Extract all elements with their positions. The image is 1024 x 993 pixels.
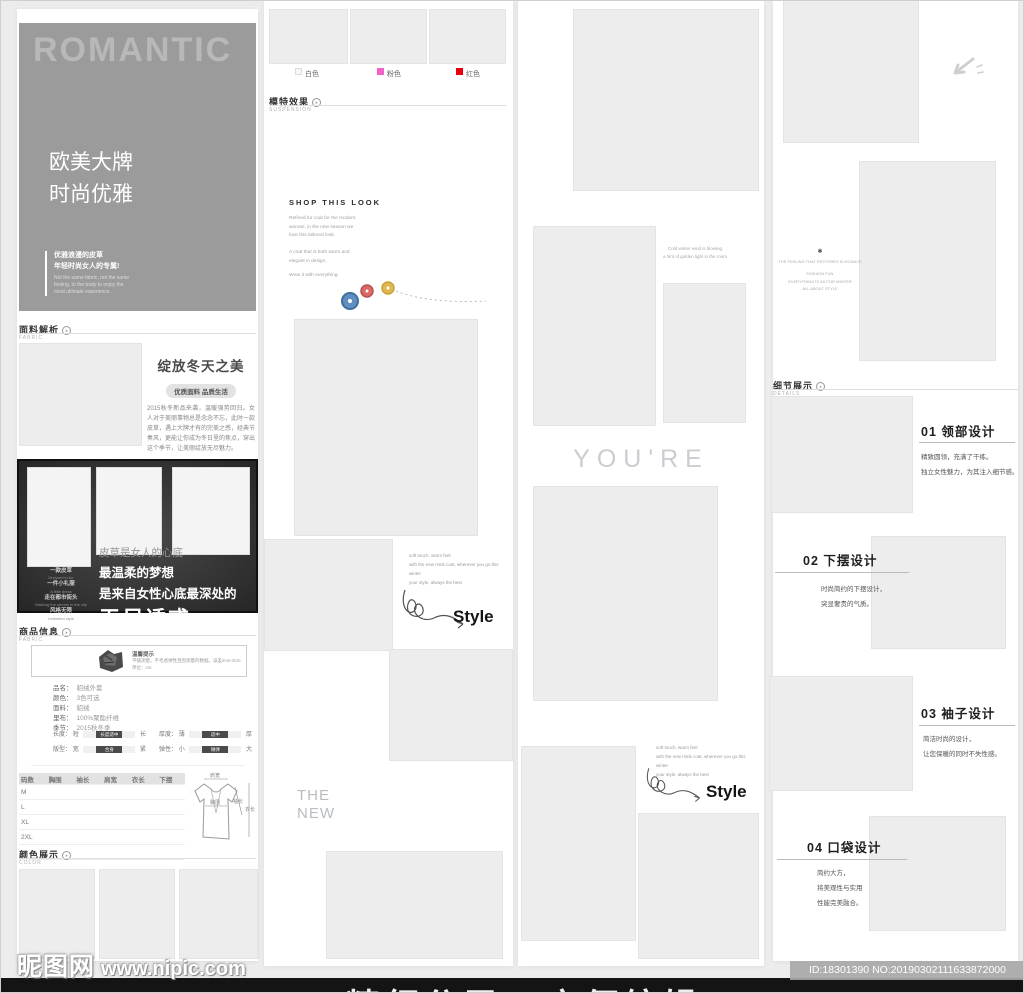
- size-col-header: 袖长: [74, 774, 102, 784]
- the-new-line: THE: [297, 787, 335, 805]
- swatch-label: 粉色: [387, 71, 401, 78]
- image-placeholder: [19, 869, 95, 959]
- handnote-line: with the new mink coat, wherever you go …: [409, 560, 509, 578]
- attr-row: 颜色：3色可选: [53, 692, 100, 702]
- diagram-label: 袖长: [233, 798, 243, 805]
- image-placeholder: [326, 851, 503, 959]
- slider-chip: 长度适中: [96, 731, 122, 738]
- table-row: 2XL: [19, 830, 185, 845]
- size-row-label: L: [19, 804, 48, 811]
- swatch-red[interactable]: 红色: [456, 68, 480, 79]
- banner-side-tags: 一款皮草 Dressed in fur 一件小礼服 A little dress…: [23, 567, 99, 621]
- squiggle-arrow-icon: [641, 763, 711, 805]
- diagram-label: 胸围: [210, 799, 220, 806]
- image-placeholder: [573, 9, 759, 191]
- detail-01-body: 精致圆领，充满了干练。 独立女性魅力，为其注入细节感。: [921, 451, 1021, 481]
- size-table-header: 码数 胸围 袖长 肩宽 衣长 下摆: [19, 773, 185, 785]
- image-placeholder: [350, 9, 427, 64]
- detail-body-line: 简约大方，: [817, 867, 912, 882]
- nipic-url: www.nipic.com: [101, 958, 246, 980]
- banner-main-text: 皮草是女人的心底 最温柔的梦想 是来自女性心底最深处的 无尽诱惑: [99, 545, 255, 633]
- jacket-diagram-icon: 肩宽 胸围 袖长 衣长: [189, 773, 255, 849]
- white-swatch-icon: [295, 68, 302, 75]
- divider: [775, 572, 909, 573]
- hero-title: ROMANTIC: [33, 31, 232, 70]
- image-placeholder: [533, 226, 656, 426]
- attr-row: 里布：100%聚酯纤维: [53, 712, 119, 722]
- nipic-logo: 昵图网: [17, 953, 95, 981]
- divider: [919, 442, 1015, 443]
- mini-line: FASHION FUN: [777, 270, 863, 278]
- slider-label: 版型：: [53, 747, 71, 753]
- hero-note-en1: Not the same fabric, not the same: [54, 275, 129, 282]
- slider-length: 长度： 短 长度适中 长: [53, 729, 146, 738]
- attr-row: 品名：貂绒外套: [53, 682, 103, 692]
- hero-subtitle-line2: 时尚优雅: [49, 179, 133, 211]
- image-placeholder: [859, 161, 996, 361]
- image-placeholder: [771, 396, 913, 513]
- photo-caption: Cold winter wind is blowing a hint of go…: [649, 245, 741, 261]
- style-label: Style: [706, 782, 747, 802]
- pink-swatch-icon: [377, 68, 384, 75]
- attr-value: 貂绒: [77, 705, 90, 712]
- hero-note-cn1: 优雅浪漫的皮草: [54, 251, 129, 262]
- detail-04-title: 04 口袋设计: [807, 837, 881, 856]
- divider: [269, 105, 506, 106]
- divider: [919, 725, 1015, 726]
- tip-line2: 单位：cm: [132, 665, 242, 672]
- measure-tip-box: 温馨提示 平铺测量，不考虑弹性且因测量的数据，误差2cm-3cm 单位：cm: [31, 645, 247, 677]
- table-row: M: [19, 785, 185, 800]
- swatch-white[interactable]: 白色: [295, 68, 319, 79]
- the-new-label: THE NEW: [297, 787, 335, 823]
- size-col-header: 下摆: [157, 774, 185, 784]
- image-placeholder: [429, 9, 506, 64]
- banner-side-cn: 风格无限: [23, 607, 99, 615]
- shop-paragraph: A coat that is both warm and elegant in …: [289, 249, 399, 266]
- slider-min: 短: [73, 732, 79, 738]
- handnote-line: soft touch, warm feel: [656, 743, 756, 752]
- image-placeholder: [96, 467, 162, 555]
- caption-line: a hint of golden light in the room: [649, 253, 741, 261]
- image-placeholder: [179, 869, 258, 959]
- stock-id-badge: ID:18301390 NO:20190302111633872000: [790, 961, 1024, 980]
- shop-line: love this tailored look.: [289, 232, 399, 241]
- caption-line: Cold winter wind is blowing: [649, 245, 741, 253]
- fabric-card-text: 绽放冬天之美 优质面料 品质生活 2015秋冬新品来袭，温暖强势回归。女人对于美…: [147, 355, 255, 454]
- detail-body-line: 时尚简约的下摆设计，: [821, 583, 916, 598]
- slider-min: 小: [179, 747, 185, 753]
- slider-max: 厚: [246, 732, 252, 738]
- fabric-section-subtitle: FABRIC: [19, 335, 43, 341]
- image-placeholder: [769, 676, 913, 791]
- handnote-line: soft touch, warm feel: [409, 551, 509, 560]
- detail-body-line: 突显奢贵的气质。: [821, 598, 916, 613]
- slider-thickness: 厚度： 薄 适中 厚: [159, 729, 252, 738]
- slider-chip: 微弹: [202, 746, 228, 753]
- slider-max: 紧: [140, 747, 146, 753]
- fabric-headline: 绽放冬天之美: [147, 355, 255, 375]
- divider: [19, 858, 256, 859]
- tip-line1: 平铺测量，不考虑弹性且因测量的数据，误差2cm-3cm: [132, 658, 242, 665]
- image-placeholder: [269, 9, 348, 64]
- tip-text: 温馨提示 平铺测量，不考虑弹性且因测量的数据，误差2cm-3cm 单位：cm: [132, 650, 242, 672]
- size-col-header: 码数: [19, 774, 47, 784]
- size-row-label: XL: [19, 819, 48, 826]
- slider-track: 微弹: [189, 746, 241, 753]
- slider-max: 大: [246, 747, 252, 753]
- attr-label: 面料：: [53, 705, 73, 712]
- mini-logo-icon: ✱: [777, 247, 863, 258]
- diagram-label: 衣长: [245, 806, 255, 813]
- slider-min: 宽: [73, 747, 79, 753]
- jacket-photo-icon: [96, 649, 126, 673]
- divider: [777, 859, 907, 860]
- detail-body-line: 独立女性魅力，为其注入细节感。: [921, 466, 1021, 481]
- detail-02-body: 时尚简约的下摆设计， 突显奢贵的气质。: [821, 583, 916, 613]
- image-placeholder: [19, 343, 142, 446]
- slider-label: 弹性：: [159, 747, 177, 753]
- shop-this-look-title: SHOP THIS LOOK: [289, 198, 381, 207]
- slider-chip: 适中: [202, 731, 228, 738]
- hand-drawn-arrow-icon: [939, 51, 985, 93]
- attr-value: 貂绒外套: [77, 685, 103, 692]
- style-handnote: soft touch, warm feel with the new mink …: [409, 551, 509, 587]
- mini-line: EVERYTHING IS AS FOR WINTER: [777, 278, 863, 286]
- image-placeholder: [521, 746, 636, 941]
- hero-subtitle: 欧美大牌 时尚优雅: [49, 147, 133, 210]
- hero-note-en3: most ultimate experience.: [54, 289, 129, 296]
- attr-label: 里布：: [53, 715, 73, 722]
- hero-banner: ROMANTIC 欧美大牌 时尚优雅 优雅浪漫的皮草 年轻时尚女人的专属! No…: [19, 23, 256, 311]
- slider-max: 长: [140, 732, 146, 738]
- size-col-header: 胸围: [47, 774, 75, 784]
- banner-side-cn: 一款皮草: [23, 567, 99, 575]
- swatch-label: 白色: [305, 71, 319, 78]
- product-section-subtitle: FABRIC: [19, 637, 43, 643]
- hero-subtitle-line1: 欧美大牌: [49, 147, 133, 179]
- shop-line: elegant in design.: [289, 258, 399, 267]
- detail-body-line: 将美观性与实用: [817, 882, 912, 897]
- detail-02-title: 02 下摆设计: [803, 550, 877, 569]
- slider-min: 薄: [179, 732, 185, 738]
- slider-label: 长度：: [53, 732, 71, 738]
- diagram-label: 肩宽: [210, 772, 220, 779]
- tip-title: 温馨提示: [132, 650, 242, 658]
- divider: [19, 333, 256, 334]
- banner-line2: 最温柔的梦想: [99, 562, 255, 581]
- slider-chip: 合身: [96, 746, 122, 753]
- table-row: XL: [19, 815, 185, 830]
- detail-body-line: 精致圆领，充满了干练。: [921, 451, 1021, 466]
- detail-03-body: 简洁时尚的设计， 让您保暖的同时不失性感。: [923, 733, 1023, 763]
- banner-line4: 无尽诱惑: [99, 603, 255, 633]
- detail-body-line: 简洁时尚的设计，: [923, 733, 1023, 748]
- attr-value: 3色可选: [77, 695, 100, 702]
- hero-note: 优雅浪漫的皮草 年轻时尚女人的专属! Not the same fabric, …: [45, 251, 129, 296]
- image-placeholder: [264, 539, 393, 651]
- slider-track: 适中: [189, 731, 241, 738]
- product-hotspot-tags: [336, 279, 496, 311]
- image-placeholder: [99, 869, 175, 959]
- attr-label: 颜色：: [53, 695, 73, 702]
- image-placeholder: [389, 649, 513, 761]
- banner-line1: 皮草是女人的心底: [99, 545, 255, 560]
- hero-note-cn2: 年轻时尚女人的专属!: [54, 262, 129, 273]
- mini-line: THE FEELING THAT RESTORES ELEGANCE: [777, 258, 863, 266]
- banner-side-cn: 走在都市街头: [23, 594, 99, 602]
- slider-stretch: 弹性： 小 微弹 大: [159, 744, 252, 753]
- fabric-badge: 优质面料 品质生活: [166, 384, 236, 398]
- detail-04-body: 简约大方， 将美观性与实用 性能完美融合。: [817, 867, 912, 912]
- image-placeholder: [663, 283, 746, 423]
- size-col-header: 衣长: [130, 774, 158, 784]
- swatch-label: 红色: [466, 71, 480, 78]
- size-row-label: M: [19, 789, 48, 796]
- youre-label: YOU'RE: [518, 445, 764, 474]
- shop-line: Refined fur coat for the modern: [289, 215, 399, 224]
- divider: [31, 765, 245, 766]
- image-placeholder: [533, 486, 718, 701]
- mini-line: ALL ABOUT STYLE: [777, 285, 863, 293]
- detail-body-line: 性能完美融合。: [817, 897, 912, 912]
- size-row-label: 2XL: [19, 834, 48, 841]
- detail-03-title: 03 袖子设计: [921, 703, 995, 722]
- hero-note-en2: feeling, to the body to enjoy the: [54, 282, 129, 289]
- color-section-subtitle: COLOR: [19, 860, 42, 866]
- shop-line: A coat that is both warm and: [289, 249, 399, 258]
- image-placeholder: [172, 467, 250, 555]
- the-new-line: NEW: [297, 805, 335, 823]
- slider-fit: 版型： 宽 合身 紧: [53, 744, 146, 753]
- image-placeholder: [783, 1, 919, 143]
- shop-paragraph: Refined fur coat for the modern woman, i…: [289, 215, 399, 241]
- slider-track: 合身: [83, 746, 135, 753]
- attr-label: 品名：: [53, 685, 73, 692]
- style-label: Style: [453, 607, 494, 627]
- slider-label: 厚度：: [159, 732, 177, 738]
- detail-page-canvas: ROMANTIC 欧美大牌 时尚优雅 优雅浪漫的皮草 年轻时尚女人的专属! No…: [0, 0, 1024, 993]
- banner-side-cn: 一件小礼服: [23, 580, 99, 588]
- detail-body-line: 让您保暖的同时不失性感。: [923, 748, 1023, 763]
- banner-side-en: Unlimited style: [23, 616, 99, 621]
- swatch-pink[interactable]: 粉色: [377, 68, 401, 79]
- image-placeholder: [294, 319, 478, 536]
- attr-value: 100%聚酯纤维: [77, 715, 120, 722]
- model-section-subtitle: SUSPENSION: [269, 107, 312, 113]
- fabric-body-text: 2015秋冬新品来袭，温暖强势回归。女人对于美丽事物总是念念不忘，此时一款皮草，…: [147, 405, 255, 454]
- watermark: 昵图网www.nipic.com: [17, 947, 246, 983]
- divider: [773, 389, 1018, 390]
- size-col-header: 肩宽: [102, 774, 130, 784]
- banner-line3: 是来自女性心底最深处的: [99, 583, 255, 602]
- bottom-bar-text: 精细分层 / 方便编辑: [346, 979, 701, 993]
- slider-track: 长度适中: [83, 731, 135, 738]
- red-swatch-icon: [456, 68, 463, 75]
- fur-banner: 一款皮草 Dressed in fur 一件小礼服 A little dress…: [17, 459, 258, 613]
- divider: [19, 635, 256, 636]
- attr-row: 面料：貂绒: [53, 702, 90, 712]
- detail-01-title: 01 领部设计: [921, 421, 995, 440]
- shop-line: woman, in the new season we: [289, 224, 399, 233]
- image-placeholder: [638, 813, 759, 959]
- image-placeholder: [27, 467, 91, 567]
- table-row: L: [19, 800, 185, 815]
- mini-text-block: ✱ THE FEELING THAT RESTORES ELEGANCE FAS…: [777, 247, 863, 293]
